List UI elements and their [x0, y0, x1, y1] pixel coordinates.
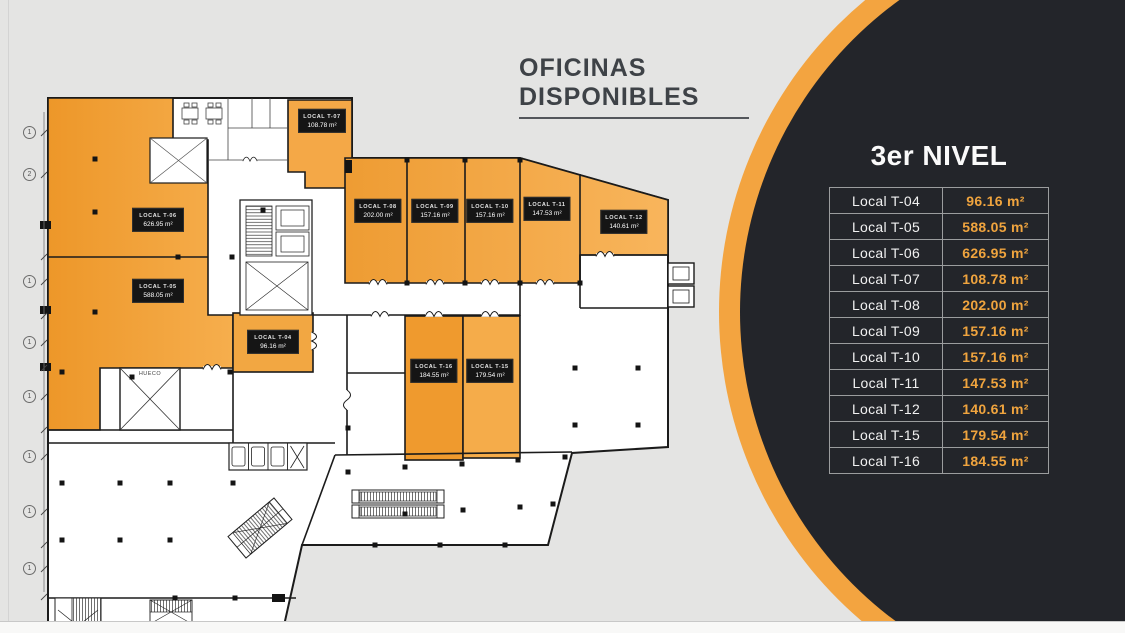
unit-area: 147.53 m²	[528, 209, 565, 218]
unit-area-cell: 147.53 m²	[943, 370, 1048, 395]
page-title: OFICINAS DISPONIBLES	[519, 54, 699, 112]
unit-name-cell: Local T-07	[830, 266, 943, 291]
table-row: Local T-12 140.61 m²	[829, 395, 1049, 422]
service-boxes	[668, 263, 694, 307]
unit-name-cell: Local T-11	[830, 370, 943, 395]
unit-area: 202.00 m²	[359, 211, 396, 220]
slide-left-edge	[8, 0, 9, 633]
grid-marker: 1	[23, 275, 36, 288]
unit-label: LOCAL T-15	[471, 363, 508, 371]
table-row: Local T-16 184.55 m²	[829, 447, 1049, 474]
unit-plate-t08: LOCAL T-08 202.00 m²	[354, 199, 401, 223]
unit-label: LOCAL T-09	[416, 203, 453, 211]
unit-label: LOCAL T-05	[137, 283, 179, 291]
elevator-core	[240, 200, 312, 315]
table-row: Local T-07 108.78 m²	[829, 265, 1049, 292]
unit-name-cell: Local T-08	[830, 292, 943, 317]
unit-area-cell: 96.16 m²	[943, 188, 1048, 213]
unit-name-cell: Local T-09	[830, 318, 943, 343]
unit-label: LOCAL T-06	[137, 212, 179, 220]
unit-plate-t09: LOCAL T-09 157.16 m²	[411, 199, 458, 223]
unit-name-cell: Local T-05	[830, 214, 943, 239]
unit-name-cell: Local T-15	[830, 422, 943, 447]
dimension-line	[41, 112, 47, 600]
elevator-bank	[229, 443, 307, 470]
vestibule-room	[150, 138, 207, 183]
unit-label: LOCAL T-12	[605, 214, 642, 222]
unit-area-cell: 626.95 m²	[943, 240, 1048, 265]
unit-plate-t06: LOCAL T-06 626.95 m²	[132, 208, 184, 232]
unit-label: LOCAL T-08	[359, 203, 396, 211]
table-row: Local T-06 626.95 m²	[829, 239, 1049, 266]
unit-plate-t04: LOCAL T-04 96.16 m²	[247, 330, 299, 354]
slide-bottom-edge	[0, 621, 1125, 633]
grid-marker: 1	[23, 126, 36, 139]
page-title-line2: DISPONIBLES	[519, 83, 699, 112]
unit-label: LOCAL T-04	[252, 334, 294, 342]
unit-area-cell: 179.54 m²	[943, 422, 1048, 447]
level-title: 3er NIVEL	[828, 140, 1050, 172]
grid-marker: 1	[23, 390, 36, 403]
grid-marker: 1	[23, 505, 36, 518]
unit-name-cell: Local T-16	[830, 448, 943, 473]
slide: LOCAL T-06 626.95 m² LOCAL T-05 588.05 m…	[0, 0, 1125, 633]
unit-name-cell: Local T-04	[830, 188, 943, 213]
unit-plate-t07: LOCAL T-07 108.78 m²	[298, 109, 346, 133]
hueco-label: HUECO	[139, 371, 161, 377]
unit-area-cell: 588.05 m²	[943, 214, 1048, 239]
unit-label: LOCAL T-10	[471, 203, 508, 211]
title-underline	[519, 117, 749, 119]
hueco-void	[120, 368, 180, 430]
unit-name-cell: Local T-10	[830, 344, 943, 369]
table-row: Local T-11 147.53 m²	[829, 369, 1049, 396]
unit-area-t15	[463, 316, 520, 458]
grid-marker: 2	[23, 168, 36, 181]
unit-area: 108.78 m²	[303, 121, 341, 130]
table-row: Local T-15 179.54 m²	[829, 421, 1049, 448]
unit-name-cell: Local T-12	[830, 396, 943, 421]
unit-area-cell: 202.00 m²	[943, 292, 1048, 317]
grid-marker: 1	[23, 450, 36, 463]
unit-plate-t15: LOCAL T-15 179.54 m²	[466, 359, 513, 383]
unit-area-cell: 184.55 m²	[943, 448, 1048, 473]
unit-plate-t10: LOCAL T-10 157.16 m²	[466, 199, 513, 223]
table-row: Local T-05 588.05 m²	[829, 213, 1049, 240]
unit-label: LOCAL T-16	[415, 363, 452, 371]
unit-area: 157.16 m²	[416, 211, 453, 220]
units-table: Local T-04 96.16 m² Local T-05 588.05 m²…	[829, 187, 1049, 474]
table-row: Local T-09 157.16 m²	[829, 317, 1049, 344]
unit-label: LOCAL T-07	[303, 113, 341, 121]
unit-name-cell: Local T-06	[830, 240, 943, 265]
unit-plate-t11: LOCAL T-11 147.53 m²	[523, 197, 570, 221]
unit-area: 140.61 m²	[605, 222, 642, 231]
unit-plate-t05: LOCAL T-05 588.05 m²	[132, 279, 184, 303]
unit-area: 179.54 m²	[471, 371, 508, 380]
unit-area-t16	[405, 316, 463, 460]
unit-area-cell: 157.16 m²	[943, 344, 1048, 369]
page-title-line1: OFICINAS	[519, 54, 699, 83]
unit-area: 626.95 m²	[137, 220, 179, 229]
unit-area: 588.05 m²	[137, 291, 179, 300]
availability-panel: 3er NIVEL Local T-04 96.16 m² Local T-05…	[828, 140, 1050, 474]
unit-area-cell: 157.16 m²	[943, 318, 1048, 343]
unit-area: 157.16 m²	[471, 211, 508, 220]
table-row: Local T-04 96.16 m²	[829, 187, 1049, 214]
unit-plate-t16: LOCAL T-16 184.55 m²	[410, 359, 457, 383]
unit-area-cell: 108.78 m²	[943, 266, 1048, 291]
table-row: Local T-08 202.00 m²	[829, 291, 1049, 318]
grid-marker: 1	[23, 562, 36, 575]
unit-plate-t12: LOCAL T-12 140.61 m²	[600, 210, 647, 234]
unit-area-cell: 140.61 m²	[943, 396, 1048, 421]
unit-area: 96.16 m²	[252, 342, 294, 351]
unit-area: 184.55 m²	[415, 371, 452, 380]
table-row: Local T-10 157.16 m²	[829, 343, 1049, 370]
unit-label: LOCAL T-11	[528, 201, 565, 209]
grid-marker: 1	[23, 336, 36, 349]
